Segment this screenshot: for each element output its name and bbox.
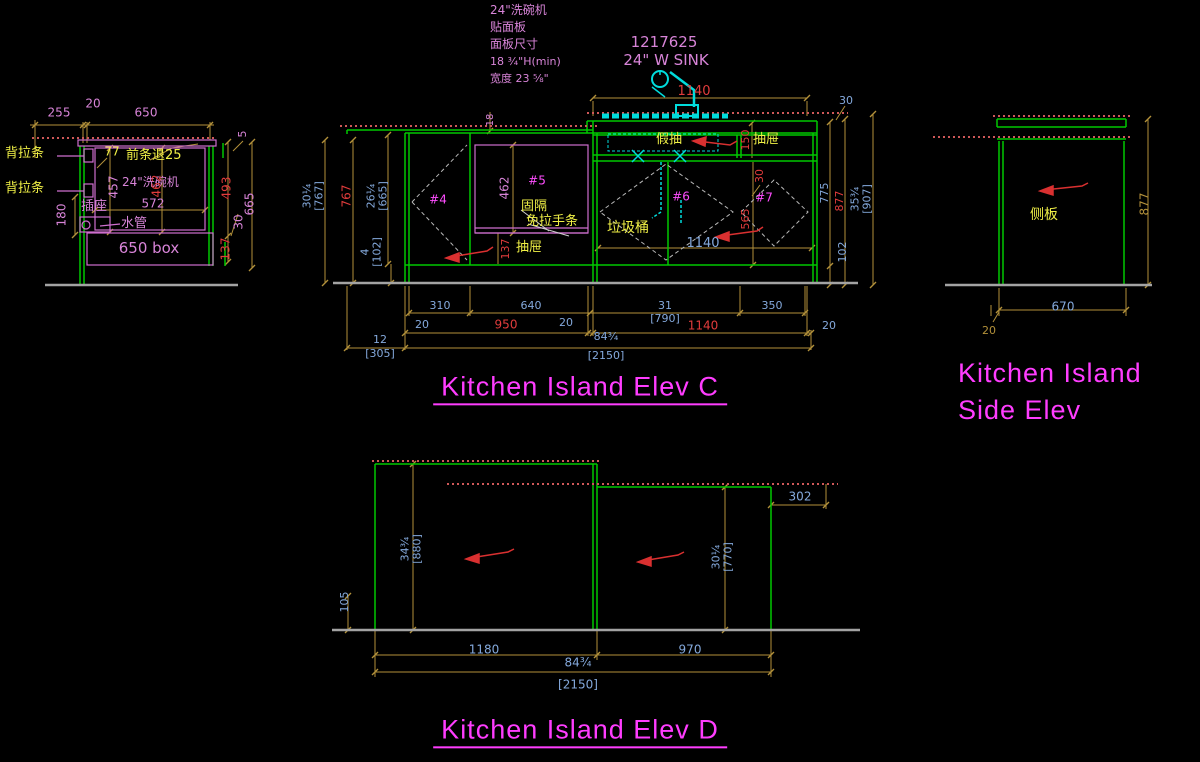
label-no-handle-strip: 免拉手条 [526,215,578,229]
dim-790: [790] [650,313,680,325]
label-cabinet-6: #6 [672,191,690,204]
dim-137-elevc: 137 [500,239,512,260]
dim-877-side: 877 [1139,193,1152,216]
sink-code: 1217625 [631,35,698,51]
dim-1140-mid: 1140 [686,237,719,251]
dim-34t-880-in: 34¾ [399,534,411,564]
dim-26q-665-mm: [665] [377,181,389,211]
dim-31: 31 [658,300,672,312]
dim-35t-907-mm: [907] [861,184,873,214]
dim-2150-elevc: [2150] [588,350,625,362]
dim-30-section: 30 [233,214,246,229]
label-trash-bin: 垃圾桶 [607,221,649,236]
label-back-rail-1: 背拉条 [5,147,44,161]
dim-493: 493 [221,177,234,200]
dim-302: 302 [789,491,812,504]
title-elev-c: Kitchen Island Elev C [433,372,727,405]
dim-150: 150 [740,130,752,151]
label-socket: 插座 [81,200,107,214]
dim-462-section: 462 [151,175,164,198]
dim-1180: 1180 [469,644,500,657]
dim-18: 18 [486,114,497,127]
dim-84-elevd: 84¾ [565,657,592,670]
dim-572: 572 [142,198,165,211]
note-panel-size: 面板尺寸 [490,38,538,51]
dim-877-elevc: 877 [834,191,846,212]
sink-label: 24" W SINK [623,53,708,69]
label-650-box: 650 box [119,241,180,257]
dim-20-c: 20 [822,320,836,332]
dim-30q-767: 30¼ [767] [301,181,324,211]
label-drawer-top: 抽屉 [753,133,779,147]
label-water-pipe: 水管 [121,217,147,231]
label-cabinet-4: #4 [429,194,447,207]
dim-105: 105 [339,592,351,613]
dim-30q-767-in: 30¼ [301,181,313,211]
dim-26q-665-in: 26¼ [365,181,377,211]
dim-310: 310 [430,300,451,312]
dim-77: 77 [104,146,119,159]
note-height-min: 18 ¾"H(min) [490,56,561,68]
dim-775: 775 [819,183,831,204]
label-drawer-mid: 抽屉 [516,241,542,255]
dim-457: 457 [108,176,121,199]
dim-20: 20 [85,98,100,111]
dim-4-102-in: 4 [359,237,371,267]
title-side-elev-line2: Side Elev [958,396,1081,424]
dim-30q-770-in: 30¼ [710,542,722,572]
dim-30-top-right: 30 [839,95,853,107]
dim-12: 12 [373,334,387,346]
dim-565: 565 [740,209,752,230]
dim-30q-770-mm: [770] [722,542,734,572]
dim-20-b: 20 [559,317,573,329]
dim-350: 350 [762,300,783,312]
dim-35t-907: 35¾ [907] [849,184,872,214]
dim-462-elevc: 462 [499,177,512,200]
note-dishwasher: 24"洗碗机 [490,4,547,17]
label-cabinet-5: #5 [528,175,546,188]
dim-650: 650 [135,107,158,120]
valve-symbols [632,150,686,162]
dim-970: 970 [679,644,702,657]
dim-950: 950 [495,319,518,332]
note-faced-panel: 贴面板 [490,21,526,34]
dim-670: 670 [1052,301,1075,314]
title-side-elev-line1: Kitchen Island [958,359,1142,387]
dim-137-section: 137 [220,238,233,261]
dim-84-elevc: 84¾ [594,331,619,343]
dim-305: [305] [365,348,395,360]
dim-102-right: 102 [837,242,849,263]
dim-4-102: 4 [102] [359,237,382,267]
countertop-dotted-lines [32,113,1130,484]
label-side-panel: 侧板 [1030,208,1058,223]
dim-2150-elevd: [2150] [558,679,598,692]
note-width: 宽度 23 ⅝" [490,73,549,85]
dim-26q-665: 26¼ [665] [365,181,388,211]
dim-35t-907-in: 35¾ [849,184,861,214]
title-elev-d: Kitchen Island Elev D [433,715,727,748]
cad-drawing-canvas: 255 20 650 5 背拉条 背拉条 77 前条退25 24"洗碗机 457… [0,0,1200,762]
dim-30-red: 30 [754,169,766,183]
label-fixed-divider: 固隔 [521,200,547,214]
dim-665: 665 [244,193,257,216]
dim-767: 767 [341,185,354,208]
label-back-rail-2: 背拉条 [5,182,44,196]
dim-4-102-mm: [102] [371,237,383,267]
dim-180: 180 [56,204,69,227]
dim-5: 5 [237,131,249,138]
dim-34t-880-mm: [880] [411,534,423,564]
dim-1140-bottom: 1140 [688,320,719,333]
label-front-strip-offset: 前条退25 [126,149,182,163]
dim-30q-767-mm: [767] [313,181,325,211]
label-fake-drawer: 假抽 [656,133,682,147]
dim-20-a: 20 [415,319,429,331]
label-cabinet-7: #7 [755,192,773,205]
dim-255: 255 [48,107,71,120]
dim-1140-top: 1140 [677,85,710,99]
dim-30q-770: 30¼ [770] [710,542,733,572]
dim-34t-880: 34¾ [880] [399,534,422,564]
dim-20-side: 20 [982,325,996,337]
door-swing-dashed [412,145,808,260]
dim-640: 640 [521,300,542,312]
